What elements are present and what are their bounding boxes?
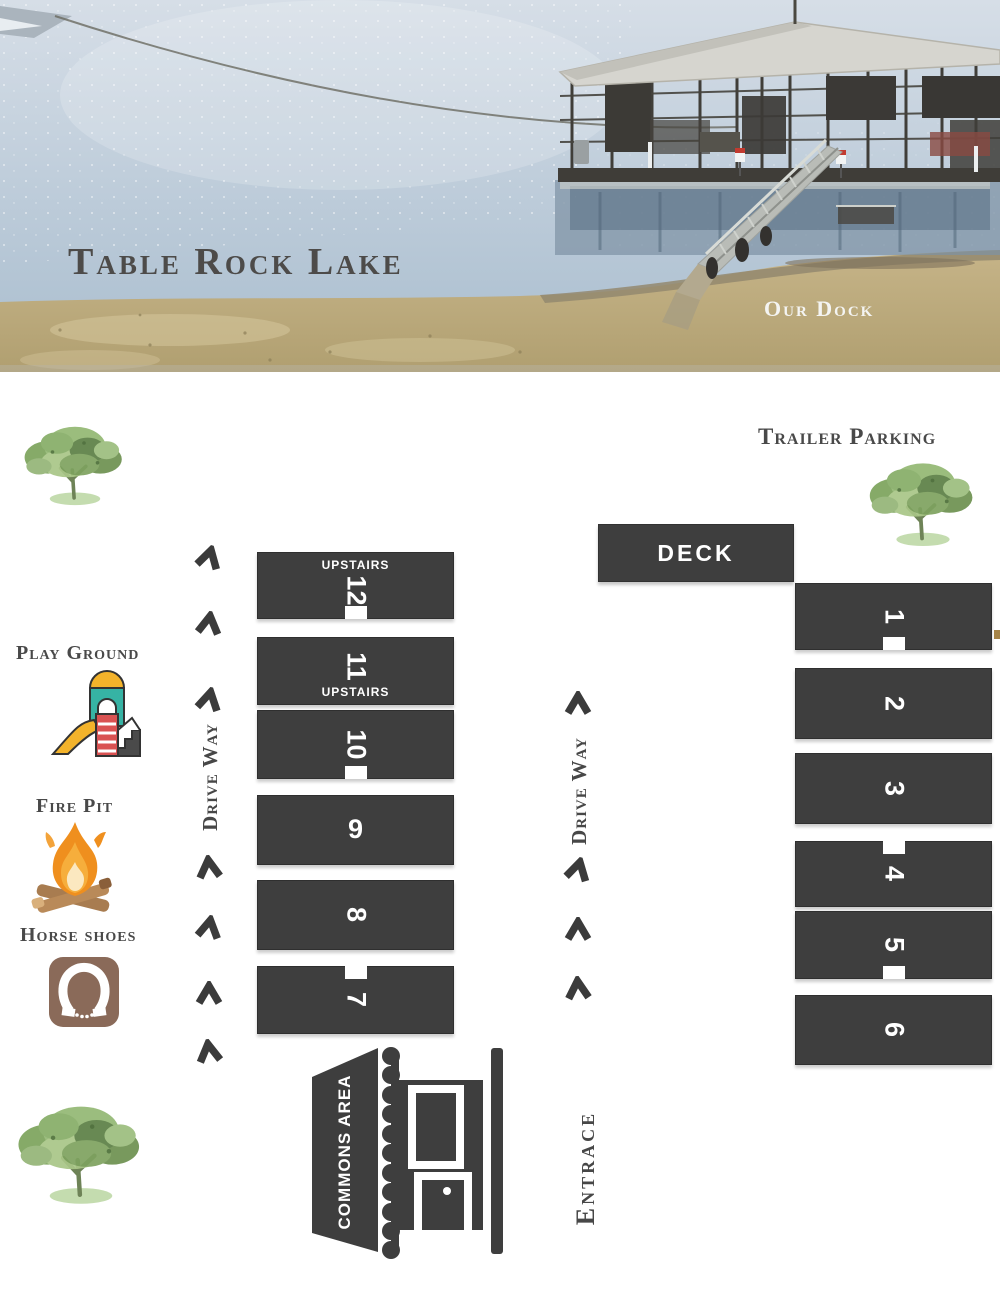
driveway-arrow-icon: [192, 1037, 225, 1067]
tree-icon: [14, 1088, 148, 1210]
drive-way-label-right: Drive Way: [567, 736, 589, 846]
cabin-7: 7: [257, 966, 454, 1034]
campground-site-map: Table Rock Lake Our Dock: [0, 0, 1000, 1290]
commons-area-label: Commons Area: [335, 1062, 357, 1242]
cabin-number: 10: [342, 729, 369, 759]
play-ground-label: Play Ground: [16, 642, 139, 665]
driveway-arrow-icon: [560, 854, 595, 886]
tree-icon: [860, 452, 986, 547]
hero-photo: Table Rock Lake Our Dock: [0, 0, 1000, 372]
fire-pit-label: Fire Pit: [36, 795, 113, 818]
cabin-number: 11: [342, 652, 369, 681]
entrance-label: Entrace: [571, 1093, 597, 1243]
upstairs-label: UPSTAIRS: [258, 558, 453, 572]
cabin-door-gap: [345, 966, 367, 979]
cabin-number: 12: [342, 575, 369, 605]
campfire-icon: [28, 818, 123, 918]
deck-label: DECK: [657, 540, 734, 567]
cabin-1: 1: [795, 583, 992, 650]
driveway-arrow-icon: [563, 917, 593, 943]
upstairs-label: UPSTAIRS: [258, 685, 453, 699]
cabin-door-gap: [883, 637, 905, 650]
cabin-number: 5: [880, 937, 907, 952]
cabin-door-gap: [883, 841, 905, 854]
cabin-number: 1: [880, 608, 907, 623]
trailer-parking-label: Trailer Parking: [758, 424, 936, 450]
cabin-11: 11 UPSTAIRS: [257, 637, 454, 705]
cabin-number: 8: [342, 907, 369, 922]
cabin-door-gap: [345, 766, 367, 779]
cabin-number: 2: [880, 695, 907, 710]
cabin-number: 7: [342, 992, 369, 1007]
map-artifact-square: [994, 630, 1000, 639]
cabin-8: 8: [257, 880, 454, 950]
cabin-door-gap: [345, 606, 367, 619]
cabin-number: 3: [880, 780, 907, 795]
driveway-arrow-icon: [563, 691, 593, 717]
cabin-icon: [295, 1038, 510, 1262]
cabin-ground-line: [491, 1048, 503, 1254]
cabin-number: 4: [880, 866, 907, 881]
cabin-4: 4: [795, 841, 992, 907]
cabin-number: 6: [880, 1022, 907, 1037]
cabin-12: UPSTAIRS 12: [257, 552, 454, 619]
cabin-9: 9: [257, 795, 454, 865]
cabin-number: 9: [348, 816, 363, 843]
driveway-arrow-icon: [192, 684, 227, 716]
cabin-door-gap: [883, 966, 905, 979]
driveway-arrow-icon: [192, 609, 225, 639]
horseshoe-icon: [48, 956, 120, 1028]
cabin-3: 3: [795, 753, 992, 824]
driveway-arrow-icon: [192, 913, 226, 944]
photo-caption: Our Dock: [764, 296, 874, 322]
photo-title: Table Rock Lake: [68, 240, 404, 284]
cabin-10: 10: [257, 710, 454, 779]
driveway-arrow-icon: [194, 981, 224, 1007]
driveway-arrow-icon: [193, 854, 226, 883]
tree-icon: [15, 416, 135, 506]
cabin-2: 2: [795, 668, 992, 739]
cabin-6: 6: [795, 995, 992, 1065]
drive-way-label-left: Drive Way: [198, 722, 220, 832]
horse-shoes-label: Horse shoes: [20, 924, 136, 947]
playground-icon: [50, 668, 145, 758]
cabin-5: 5: [795, 911, 992, 979]
driveway-arrow-icon: [562, 975, 594, 1003]
deck-building: DECK: [598, 524, 794, 582]
driveway-arrow-icon: [191, 542, 227, 575]
